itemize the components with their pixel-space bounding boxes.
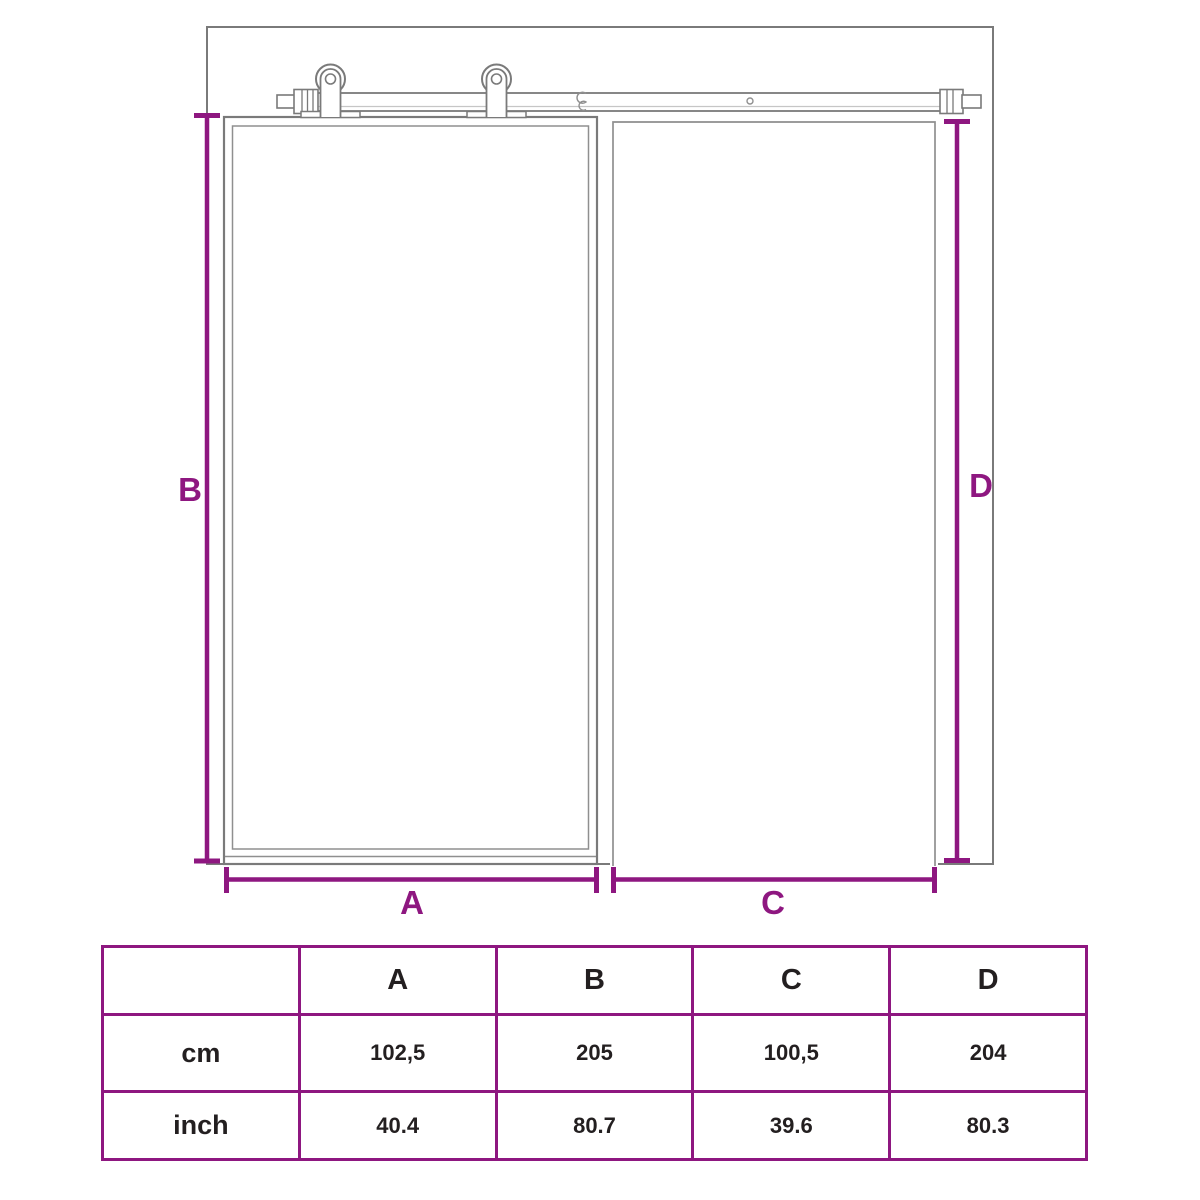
header-cell-empty [103,947,300,1015]
cm-value-d: 204 [890,1015,1087,1092]
door-panel [224,117,597,864]
header-cell-d: D [890,947,1087,1015]
table-header-row: A B C D [103,947,1087,1015]
dim-label-c: C [747,884,799,922]
sliding-rail-assembly [277,90,981,114]
dimensions-table: A B C D cm 102,5 205 100,5 204 inch 40.4… [101,945,1088,1161]
rail-mounting-hole [747,98,753,104]
cm-value-a: 102,5 [299,1015,496,1092]
roller-axle-right [492,74,502,84]
roller-axle-left [326,74,336,84]
doorway-mask [610,119,938,868]
inch-value-a: 40.4 [299,1092,496,1160]
door-diagram [0,0,1200,940]
cm-value-b: 205 [496,1015,693,1092]
table-row-inch: inch 40.4 80.7 39.6 80.3 [103,1092,1087,1160]
row-label-cm: cm [103,1015,300,1092]
row-label-inch: inch [103,1092,300,1160]
cm-value-c: 100,5 [693,1015,890,1092]
inch-value-c: 39.6 [693,1092,890,1160]
dim-label-b: B [164,471,216,509]
dim-label-a: A [386,884,438,922]
header-cell-a: A [299,947,496,1015]
header-cell-b: B [496,947,693,1015]
table-row-cm: cm 102,5 205 100,5 204 [103,1015,1087,1092]
dim-label-d: D [955,467,1007,505]
product-dimension-sheet: A B C D A B C D cm 102,5 205 100,5 204 i… [0,0,1200,1200]
door-outer-frame [224,117,597,864]
header-cell-c: C [693,947,890,1015]
inch-value-d: 80.3 [890,1092,1087,1160]
rail-bar [296,93,942,111]
inch-value-b: 80.7 [496,1092,693,1160]
